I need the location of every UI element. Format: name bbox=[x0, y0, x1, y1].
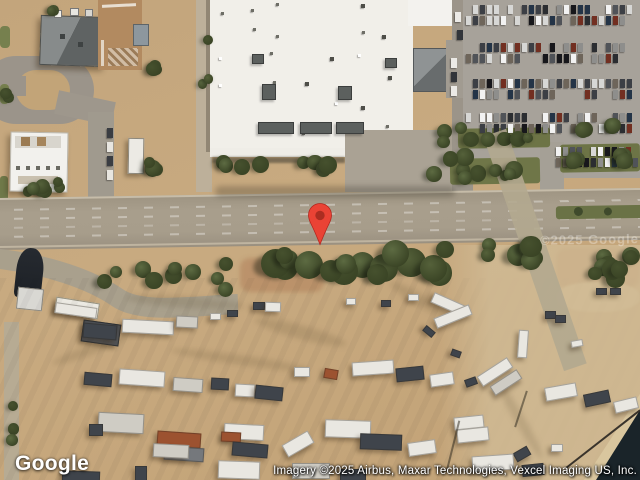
tree-canopy bbox=[110, 266, 122, 278]
rooftop-unit bbox=[70, 8, 79, 16]
tree-canopy bbox=[135, 261, 152, 278]
parking-strip bbox=[446, 40, 463, 98]
tree-canopy bbox=[144, 157, 155, 168]
tree-shadow bbox=[141, 62, 159, 77]
tree-shadow bbox=[214, 257, 232, 272]
tree-shadow bbox=[340, 253, 373, 280]
utility-structure bbox=[133, 24, 149, 46]
median-shrub bbox=[604, 207, 612, 215]
warehouse-roof-southwing bbox=[210, 148, 345, 157]
rooftop-vent bbox=[78, 42, 83, 47]
tree-canopy bbox=[151, 64, 162, 75]
tree-shadow bbox=[164, 262, 181, 276]
tree-canopy bbox=[145, 162, 160, 177]
map-marker-icon[interactable] bbox=[307, 202, 333, 246]
tree-canopy bbox=[149, 60, 162, 73]
road-median-grass bbox=[556, 205, 640, 220]
attribution-text: Imagery ©2025 Airbus, Maxar Technologies… bbox=[273, 465, 637, 477]
retail-vent-row bbox=[16, 166, 60, 170]
warehouse-apron bbox=[345, 130, 457, 192]
office-building-roof bbox=[39, 15, 107, 67]
tree-canopy bbox=[350, 252, 376, 278]
tree-canopy bbox=[150, 163, 163, 176]
warehouse-roof bbox=[210, 0, 413, 148]
tree-shadow bbox=[146, 64, 161, 76]
entry-canopy bbox=[18, 176, 58, 184]
warehouse-north-pad bbox=[408, 0, 452, 26]
annex-pitched-roof bbox=[413, 48, 448, 92]
tree-canopy bbox=[146, 62, 160, 76]
tree-canopy bbox=[396, 248, 425, 277]
tree-shadow bbox=[328, 254, 354, 275]
google-logo[interactable]: Google bbox=[15, 452, 89, 476]
grass-patch bbox=[0, 26, 10, 48]
satellite-map-canvas[interactable]: ©2025 Google Google Imagery ©2025 Airbus… bbox=[0, 0, 640, 480]
tree-canopy bbox=[316, 162, 331, 177]
imagery-watermark: ©2025 Google bbox=[540, 231, 639, 248]
rooftop-unit bbox=[37, 137, 46, 146]
tree-shadow bbox=[386, 249, 423, 280]
warehouse-shadow-strip bbox=[212, 157, 345, 163]
tree-canopy bbox=[336, 254, 356, 274]
tree-canopy bbox=[382, 240, 409, 267]
side-street bbox=[88, 112, 114, 198]
rooftop-unit bbox=[85, 9, 93, 17]
demolition-wall bbox=[101, 40, 104, 66]
tree-shadow bbox=[311, 162, 330, 178]
tree-canopy bbox=[168, 262, 181, 275]
rooftop-unit bbox=[54, 10, 62, 18]
tree-shadow bbox=[144, 60, 160, 73]
grass-patch bbox=[0, 84, 9, 104]
tree-canopy bbox=[219, 257, 233, 271]
box-truck bbox=[128, 138, 145, 174]
rooftop-unit bbox=[21, 137, 30, 146]
median-shrub bbox=[574, 207, 583, 216]
tree-shadow bbox=[129, 262, 150, 279]
tree-canopy bbox=[145, 160, 161, 176]
rooftop-vent bbox=[60, 34, 65, 39]
landscape-strip bbox=[560, 143, 640, 172]
demolition-rubble bbox=[108, 48, 138, 66]
tree-shadow-on-road bbox=[215, 186, 455, 197]
tree-shadow bbox=[145, 163, 162, 177]
tree-shadow bbox=[372, 241, 407, 270]
